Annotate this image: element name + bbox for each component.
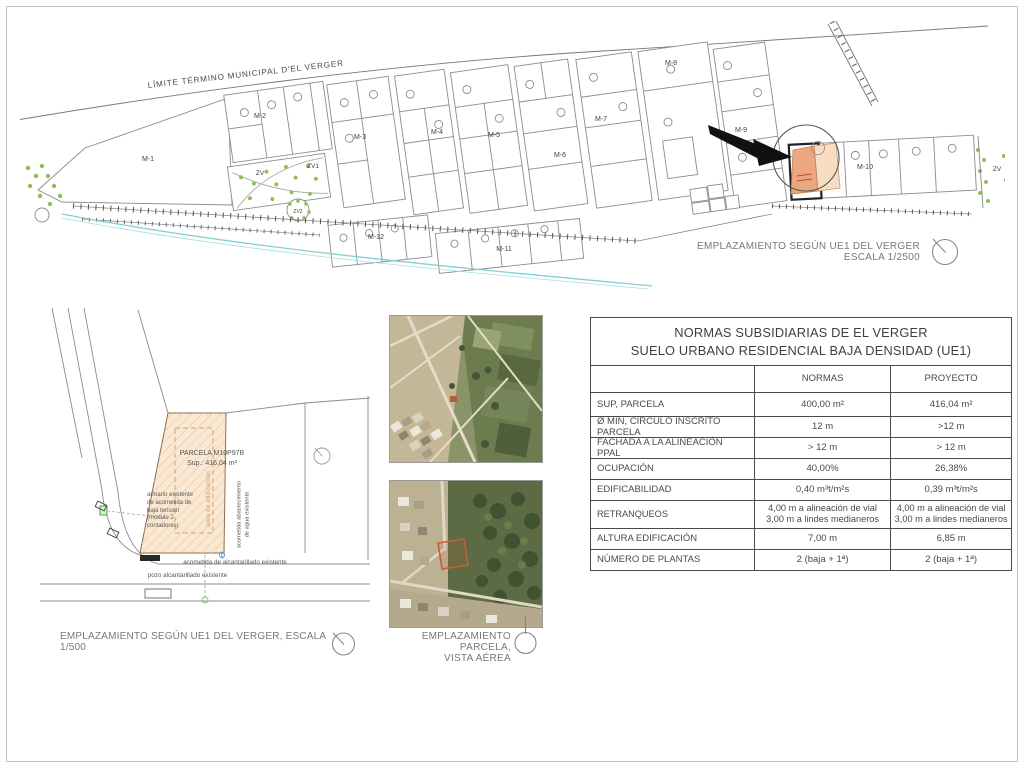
row-proyecto: 2 (baja + 1ª) — [891, 550, 1011, 570]
label-agua: acometida abastecimiento de agua existen… — [236, 477, 251, 553]
row-normas: 400,00 m² — [755, 393, 891, 416]
block-m8 — [638, 42, 728, 200]
block-m7 — [576, 52, 652, 208]
block-label-m7: M-7 — [595, 116, 607, 123]
block-label-m2: M-2 — [254, 113, 266, 120]
highlight-roof — [450, 396, 457, 402]
table-row: FACHADA A LA ALINEACIÓN PPAL > 12 m > 12… — [591, 438, 1011, 459]
aerial-photo-close — [389, 480, 543, 628]
plan-sheet: { "page": { "border_color": "#c2c2c2" },… — [0, 0, 1024, 768]
table-title: NORMAS SUBSIDIARIAS DE EL VERGER SUELO U… — [591, 318, 1011, 366]
row-proyecto: 0,39 m³t/m²s — [891, 480, 1011, 500]
table-row: OCUPACIÓN 40,00% 26,38% — [591, 459, 1011, 480]
aerial-caption: EMPLAZAMIENTO PARCELA, VISTA AÉREA — [388, 631, 511, 664]
label-pozo: pozo alcantarillado existente — [110, 572, 265, 579]
row-normas: > 12 m — [755, 438, 891, 458]
header-proyecto: PROYECTO — [891, 366, 1011, 392]
table-header-row: NORMAS PROYECTO — [591, 366, 1011, 393]
caption-line2: ESCALA 1/2500 — [690, 252, 920, 263]
row-label: ALTURA EDIFICACIÓN — [591, 529, 755, 549]
label-armario: armario existente de acometida de baja t… — [147, 492, 213, 531]
row-normas: 0,40 m³t/m²s — [755, 480, 891, 500]
label-edificacion: área de edificación — [206, 467, 212, 531]
row-label: SUP, PARCELA — [591, 393, 755, 416]
table-row: ALTURA EDIFICACIÓN 7,00 m 6,85 m — [591, 529, 1011, 550]
block-label-m1: M-1 — [142, 156, 154, 163]
row-normas: 40,00% — [755, 459, 891, 479]
row-label: NÚMERO DE PLANTAS — [591, 550, 755, 570]
row-label: RETRANQUEOS — [591, 501, 755, 528]
site-plan-caption: EMPLAZAMIENTO SEGÚN UE1 DEL VERGER ESCAL… — [690, 241, 920, 263]
table-row: Ø MÍN, CÍRCULO INSCRITO PARCELA 12 m >12… — [591, 417, 1011, 438]
block-label-m12: M-12 — [368, 234, 384, 241]
green-zone-park — [227, 153, 330, 210]
block-m3 — [327, 76, 406, 207]
block-label-m9: M-9 — [735, 127, 747, 134]
north-icon-2500 — [930, 236, 960, 266]
row-proyecto: >12 m — [891, 417, 1011, 437]
row-proyecto: 6,85 m — [891, 529, 1011, 549]
detail-plan-caption: EMPLAZAMIENTO SEGÚN UE1 DEL VERGER, ESCA… — [60, 631, 340, 653]
road-m10 — [772, 206, 972, 214]
aerial-caption-line1: EMPLAZAMIENTO PARCELA, — [388, 631, 511, 653]
detail-parcel — [140, 413, 226, 553]
north-icon-aerial — [512, 612, 540, 658]
normas-table: NORMAS SUBSIDIARIAS DE EL VERGER SUELO U… — [590, 317, 1012, 571]
table-row: EDIFICABILIDAD 0,40 m³t/m²s 0,39 m³t/m²s — [591, 480, 1011, 501]
north-icon-detail — [314, 448, 330, 464]
block-m1 — [38, 98, 232, 205]
table-row: SUP, PARCELA 400,00 m² 416,04 m² — [591, 393, 1011, 417]
table-row: NÚMERO DE PLANTAS 2 (baja + 1ª) 2 (baja … — [591, 550, 1011, 570]
row-label: EDIFICABILIDAD — [591, 480, 755, 500]
row-normas: 2 (baja + 1ª) — [755, 550, 891, 570]
row-proyecto: 416,04 m² — [891, 393, 1011, 416]
parcel-title: PARCELA M10P97B — [162, 450, 262, 457]
parcel-area: Sup.: 416,04 m² — [162, 460, 262, 467]
block-m5 — [450, 65, 527, 214]
table-title-line1: NORMAS SUBSIDIARIAS DE EL VERGER — [595, 324, 1007, 342]
row-normas: 7,00 m — [755, 529, 891, 549]
row-label: FACHADA A LA ALINEACIÓN PPAL — [591, 438, 755, 458]
green-label-zv: ZV — [256, 170, 265, 177]
block-label-m8: M-8 — [665, 60, 677, 67]
row-proyecto: 4,00 m a alineación de vial 3,00 m a lin… — [891, 501, 1011, 528]
row-proyecto: > 12 m — [891, 438, 1011, 458]
green-label-zv2: ZV2 — [293, 209, 302, 215]
block-label-m6: M-6 — [554, 152, 566, 159]
green-label-zv1: ZV1 — [307, 163, 319, 170]
block-label-m5: M-5 — [488, 132, 500, 139]
aerial-photo-wide — [389, 315, 543, 463]
block-label-m10: M-10 — [857, 164, 873, 171]
header-normas: NORMAS — [755, 366, 891, 392]
row-label: Ø MÍN, CÍRCULO INSCRITO PARCELA — [591, 417, 755, 437]
caption-line1: EMPLAZAMIENTO SEGÚN UE1 DEL VERGER — [690, 241, 920, 252]
header-empty — [591, 366, 755, 392]
green-label-zv-right: ZV — [993, 166, 1002, 173]
parcel-red-outline — [438, 539, 468, 569]
row-proyecto: 26,38% — [891, 459, 1011, 479]
block-label-m3: M-3 — [354, 134, 366, 141]
block-label-m4: M-4 — [431, 129, 443, 136]
label-alcantarillado: acometida de alcantarillado existente — [155, 559, 315, 566]
table-title-line2: SUELO URBANO RESIDENCIAL BAJA DENSIDAD (… — [595, 342, 1007, 360]
roundabout — [35, 208, 49, 222]
block-m2 — [224, 81, 332, 162]
row-normas: 12 m — [755, 417, 891, 437]
table-row: RETRANQUEOS 4,00 m a alineación de vial … — [591, 501, 1011, 529]
aerial-caption-line2: VISTA AÉREA — [388, 653, 511, 664]
row-normas: 4,00 m a alineación de vial 3,00 m a lin… — [755, 501, 891, 528]
block-label-m11: M-11 — [496, 246, 512, 253]
row-label: OCUPACIÓN — [591, 459, 755, 479]
north-icon-500 — [330, 630, 358, 658]
